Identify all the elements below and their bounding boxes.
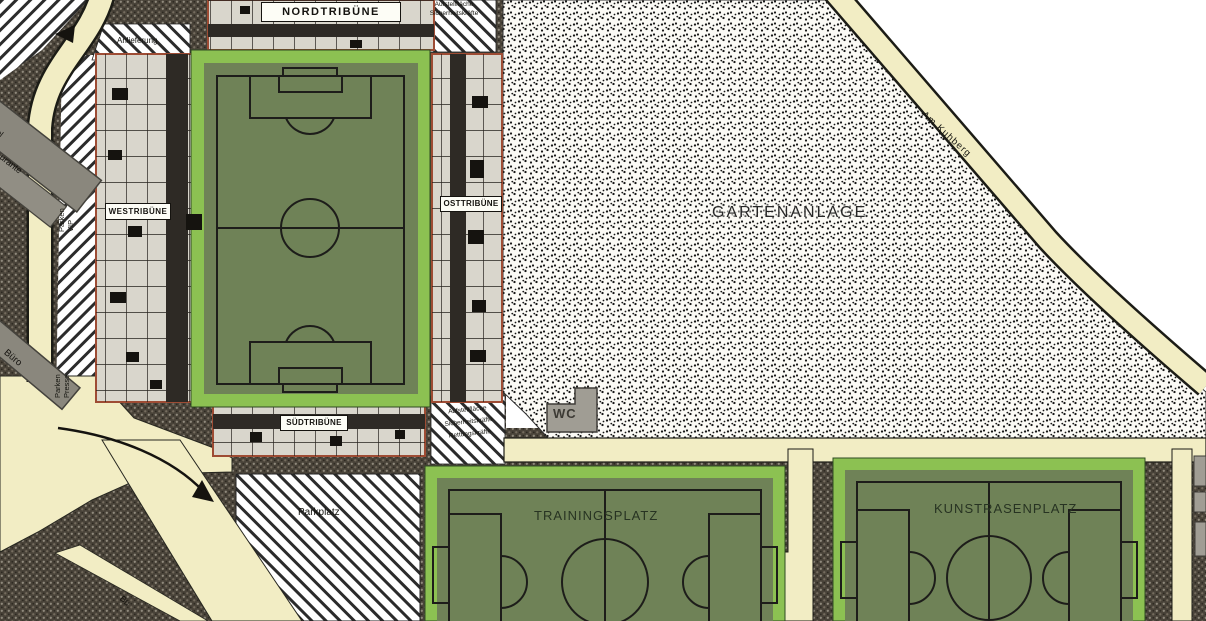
wc-label: WC [553, 407, 577, 422]
north-stand-label: NORDTRIBÜNE [261, 2, 401, 22]
stadium-site-plan: NORDTRIBÜNE WESTRIBÜNE OSTTRIBÜNE SÜDTRI… [0, 0, 1206, 621]
training-pitch [425, 466, 785, 621]
parking-press-line2: Presse [63, 374, 72, 398]
staging-south-label: Aufstellfläche Sicherheitskräfte Rettung… [434, 401, 503, 444]
delivery-label: Anlieferung [117, 36, 157, 45]
staging-north-label: Aufstellfläche Sicherheitskräfte [414, 0, 494, 18]
east-edge-buildings [1194, 456, 1206, 556]
staging-north-line2: Sicherheitskräfte [414, 9, 494, 18]
road-east-vertical [1172, 449, 1192, 621]
south-stand-label: SÜDTRIBÜNE [280, 415, 348, 431]
west-stand [96, 54, 192, 402]
artificial-turf-pitch [833, 458, 1145, 621]
east-stand [432, 54, 502, 402]
main-pitch [186, 50, 430, 407]
parking-press-label: Parken Presse [54, 374, 71, 398]
site-plan-drawing [0, 0, 1206, 621]
parking-lot-label: Parkplatz [298, 507, 340, 519]
pitch-gate [186, 214, 202, 230]
parking-vip-line2: VIP [67, 208, 76, 232]
west-stand-label: WESTRIBÜNE [105, 203, 171, 220]
garden-label: GARTENANLAGE [712, 204, 867, 222]
artificial-turf-label: KUNSTRASENPLATZ [934, 502, 1077, 517]
parking-vip-label: Parken VIP [58, 208, 75, 232]
east-stand-label: OSTTRIBÜNE [440, 196, 502, 212]
staging-north-line1: Aufstellfläche [414, 0, 494, 9]
training-pitch-label: TRAININGSPLATZ [534, 509, 658, 524]
